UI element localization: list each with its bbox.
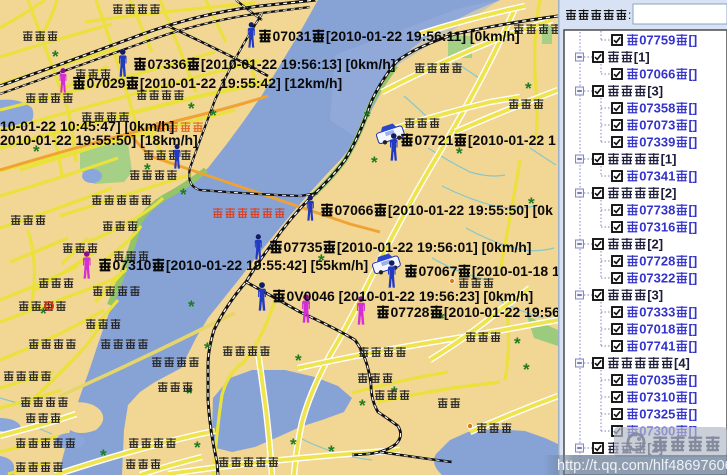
svg-text:[]: [] [689,373,698,388]
svg-text:[1]: [1] [634,50,650,65]
svg-text:*: * [210,106,217,125]
svg-text:07333: 07333 [639,305,675,320]
svg-text:07325: 07325 [639,407,675,422]
svg-text:07073: 07073 [639,118,675,133]
svg-text:[]: [] [689,339,698,354]
svg-text:[]: [] [689,203,698,218]
svg-text:*: * [194,438,201,457]
svg-text:[2]: [2] [661,186,677,201]
svg-text:*: * [514,334,521,353]
svg-text:*: * [188,297,195,316]
svg-text:*: * [180,185,187,204]
svg-text:*: * [364,107,371,126]
svg-text:[2010-01-22 19:56:13] [0km/h]: [2010-01-22 19:56:13] [0km/h] [201,56,396,72]
svg-text:[]: [] [689,101,698,116]
svg-text:*: * [371,153,378,172]
svg-text:[2010-01-22 19:55:42] [55km/h]: [2010-01-22 19:55:42] [55km/h] [166,257,368,273]
svg-text:*: * [52,47,59,66]
svg-text::: : [628,8,631,22]
svg-text:[]: [] [689,135,698,150]
svg-text:*: * [359,396,366,415]
svg-text:[2]: [2] [647,237,663,252]
svg-text:07735: 07735 [284,239,323,255]
svg-text:2010-01-22 19:55:50] [18km/h]: 2010-01-22 19:55:50] [18km/h] [0,132,198,148]
svg-text:[2010-01-22 19:56: [2010-01-22 19:56 [444,304,560,320]
svg-text:*: * [525,79,532,98]
svg-text:[]: [] [689,271,698,286]
svg-text:*: * [456,144,463,163]
svg-text:[2010-01-22 19:55:42] [12km/h]: [2010-01-22 19:55:42] [12km/h] [140,75,342,91]
svg-text:[2010-01-22 19:55:50] [0k: [2010-01-22 19:55:50] [0k [388,202,553,218]
svg-text:[]: [] [689,390,698,405]
svg-text:07066: 07066 [335,202,374,218]
svg-text:07728: 07728 [639,254,675,269]
svg-text:07738: 07738 [639,203,675,218]
svg-text:[]: [] [689,33,698,48]
svg-text:07310: 07310 [113,257,152,273]
svg-text:0V0046 [2010-01-22 19:56:23] [: 0V0046 [2010-01-22 19:56:23] [0km/h] [287,288,534,304]
svg-text:07067: 07067 [419,263,458,279]
svg-text:07018: 07018 [639,322,675,337]
svg-text:07341: 07341 [639,169,675,184]
svg-text:[3]: [3] [647,288,663,303]
svg-text:[1]: [1] [661,152,677,167]
svg-text:07031: 07031 [273,28,312,44]
svg-text:[]: [] [689,407,698,422]
svg-text:http://t.qq.com/hlf48697606: http://t.qq.com/hlf48697606 [557,458,727,474]
svg-text:*: * [290,435,297,454]
svg-text:*: * [523,360,530,379]
svg-text:[]: [] [689,169,698,184]
svg-text:07322: 07322 [639,271,675,286]
svg-text:[2010-01-22 19:56:01] [0km/h]: [2010-01-22 19:56:01] [0km/h] [337,239,532,255]
svg-text:07310: 07310 [639,390,675,405]
svg-text:[2010-01-22 19:56:11] [0km/h]: [2010-01-22 19:56:11] [0km/h] [326,28,520,44]
svg-text:07339: 07339 [639,135,675,150]
svg-text:07728: 07728 [391,304,430,320]
svg-text:07336: 07336 [148,56,187,72]
svg-text:*: * [188,99,195,118]
svg-text:07066: 07066 [639,67,675,82]
svg-text:*: * [100,446,107,465]
svg-text:[]: [] [689,220,698,235]
svg-text:[3]: [3] [647,84,663,99]
svg-text:[2010-01-22 1: [2010-01-22 1 [468,132,556,148]
svg-text:07741: 07741 [639,339,675,354]
svg-text:[]: [] [689,118,698,133]
svg-text:[]: [] [689,305,698,320]
svg-text:[]: [] [689,322,698,337]
svg-text:[]: [] [689,67,698,82]
svg-text:07358: 07358 [639,101,675,116]
svg-text:07029: 07029 [87,75,126,91]
svg-text:07035: 07035 [639,373,675,388]
svg-text:[4]: [4] [674,356,690,371]
svg-text:[]: [] [689,254,698,269]
svg-text:07759: 07759 [639,33,675,48]
svg-text:*: * [328,442,335,461]
svg-text:07721: 07721 [415,132,454,148]
svg-text:07316: 07316 [639,220,675,235]
svg-text:[2010-01-18 1: [2010-01-18 1 [472,263,560,279]
svg-text:*: * [204,339,211,358]
svg-text:*: * [295,351,302,370]
